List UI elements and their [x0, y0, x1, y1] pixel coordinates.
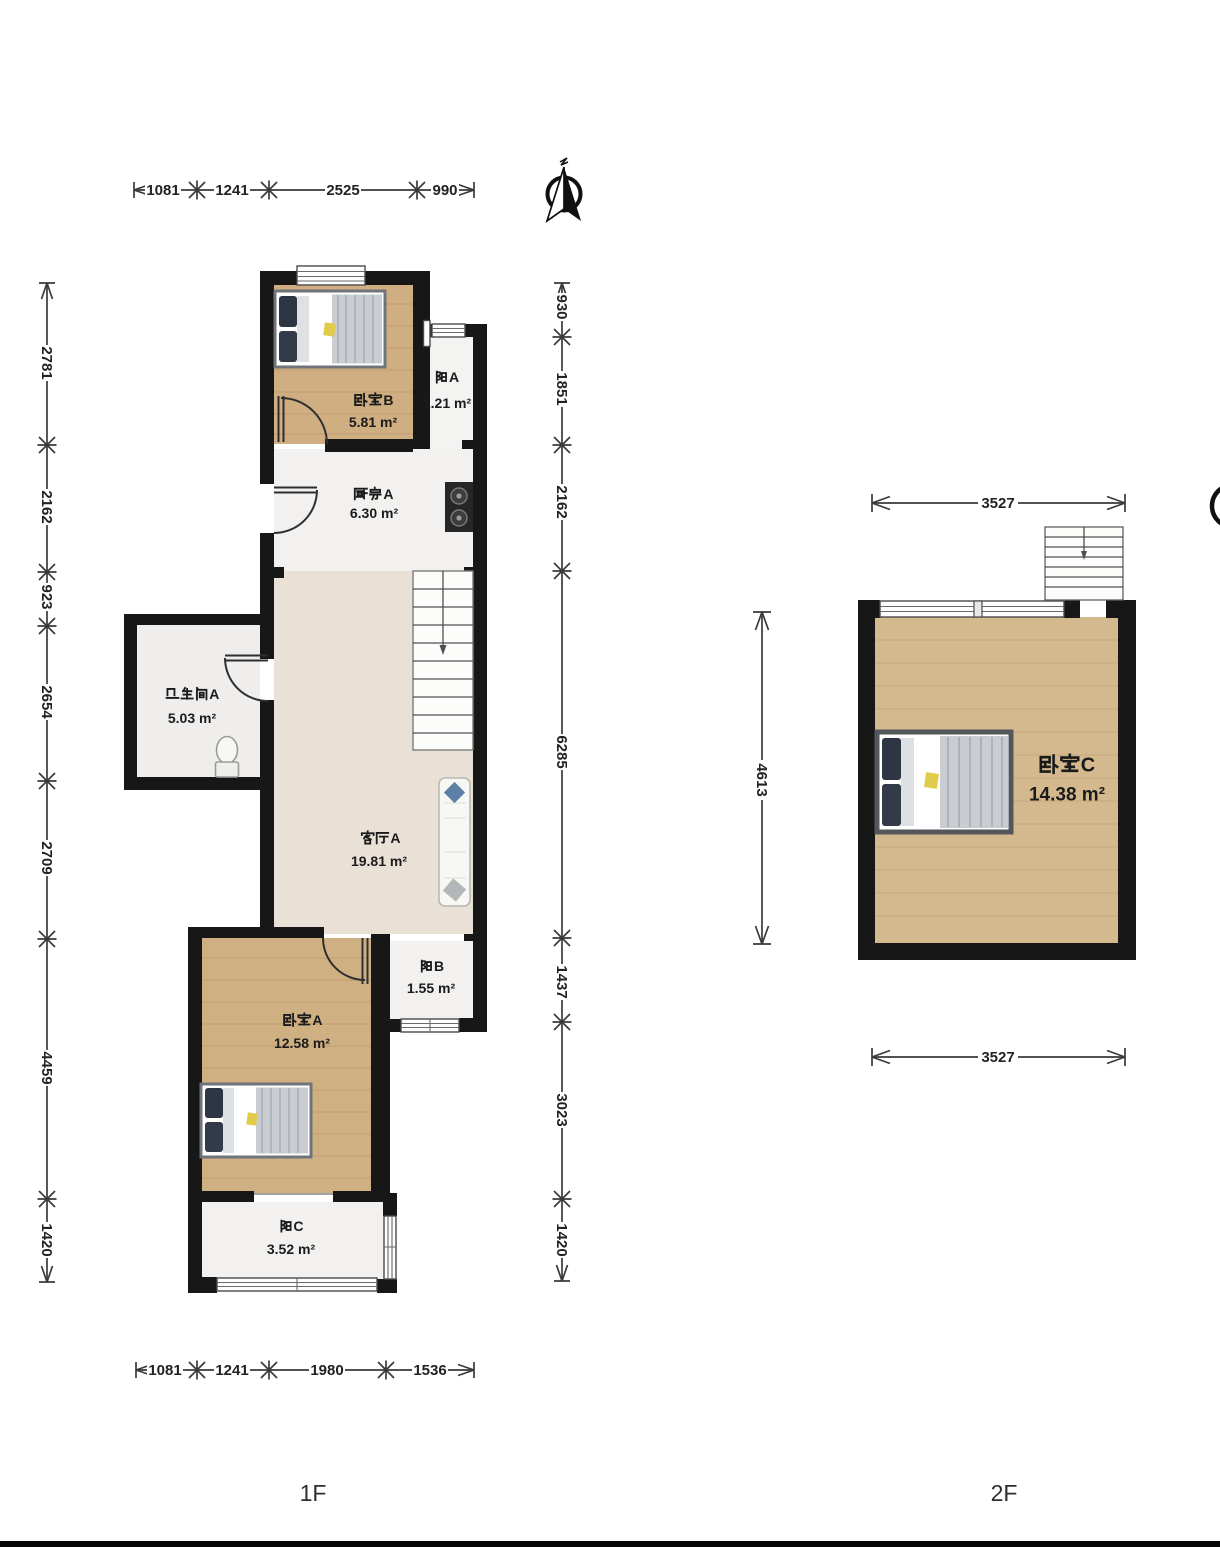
svg-text:A: A [383, 486, 393, 502]
svg-text:5.03 m²: 5.03 m² [168, 710, 217, 726]
svg-text:C: C [1081, 755, 1095, 777]
svg-text:1.55 m²: 1.55 m² [407, 980, 456, 996]
svg-text:1241: 1241 [215, 1362, 248, 1379]
svg-text:4613: 4613 [753, 763, 770, 796]
svg-text:B: B [383, 392, 393, 408]
svg-text:5.81 m²: 5.81 m² [349, 414, 398, 430]
svg-text:1241: 1241 [215, 182, 248, 199]
svg-text:B: B [434, 958, 444, 974]
svg-text:923: 923 [38, 584, 55, 609]
svg-text:3.52 m²: 3.52 m² [267, 1241, 316, 1257]
svg-text:14.38 m²: 14.38 m² [1029, 785, 1105, 806]
svg-text:3527: 3527 [981, 495, 1014, 512]
svg-text:1980: 1980 [310, 1362, 343, 1379]
svg-text:2162: 2162 [38, 490, 55, 523]
svg-text:2781: 2781 [38, 346, 55, 379]
svg-text:2709: 2709 [38, 841, 55, 874]
svg-text:1081: 1081 [146, 182, 179, 199]
svg-text:1420: 1420 [38, 1223, 55, 1256]
svg-text:2F: 2F [991, 1480, 1018, 1506]
svg-text:990: 990 [432, 182, 457, 199]
svg-text:A: A [449, 369, 459, 385]
svg-text:A: A [312, 1012, 322, 1028]
svg-text:A: A [209, 686, 219, 702]
svg-text:1536: 1536 [413, 1362, 446, 1379]
svg-text:6285: 6285 [553, 735, 570, 768]
svg-text:2525: 2525 [326, 182, 359, 199]
svg-text:1851: 1851 [553, 372, 570, 405]
svg-text:3527: 3527 [981, 1049, 1014, 1066]
svg-text:C: C [293, 1218, 303, 1234]
svg-text:A: A [390, 830, 400, 846]
svg-text:19.81 m²: 19.81 m² [351, 853, 407, 869]
svg-text:4459: 4459 [38, 1051, 55, 1084]
svg-text:1.21 m²: 1.21 m² [423, 395, 472, 411]
svg-text:12.58 m²: 12.58 m² [274, 1035, 330, 1051]
svg-text:1437: 1437 [553, 965, 570, 998]
svg-text:1420: 1420 [553, 1223, 570, 1256]
svg-text:2162: 2162 [553, 485, 570, 518]
svg-text:1081: 1081 [148, 1362, 181, 1379]
svg-text:3023: 3023 [553, 1093, 570, 1126]
svg-text:6.30 m²: 6.30 m² [350, 505, 399, 521]
svg-text:2654: 2654 [38, 685, 55, 719]
svg-text:930: 930 [553, 294, 570, 319]
svg-text:1F: 1F [300, 1480, 327, 1506]
